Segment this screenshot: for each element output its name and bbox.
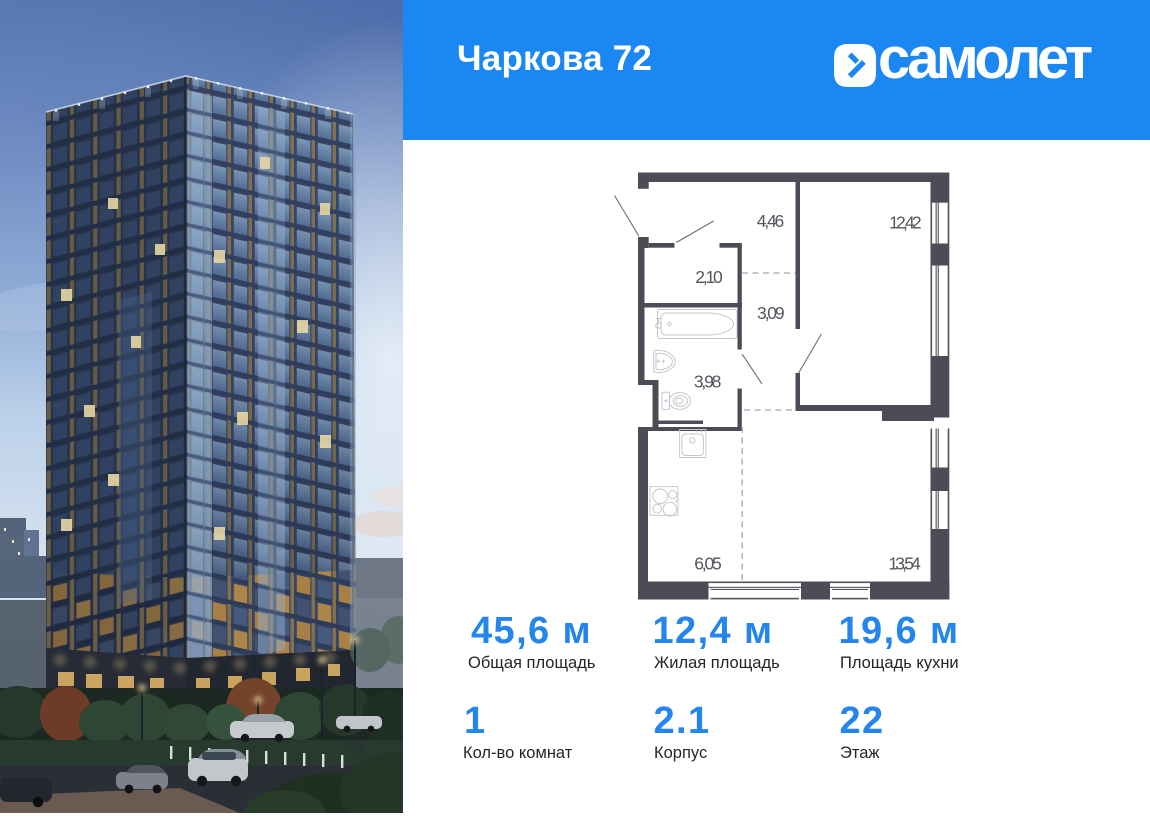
svg-text:4,46: 4,46 [757,211,785,231]
svg-text:3,09: 3,09 [757,303,785,323]
svg-text:2,10: 2,10 [695,267,723,287]
svg-text:13,54: 13,54 [888,554,921,574]
svg-text:12,42: 12,42 [889,212,922,232]
svg-text:6,05: 6,05 [694,554,722,574]
svg-text:3,98: 3,98 [694,371,722,391]
